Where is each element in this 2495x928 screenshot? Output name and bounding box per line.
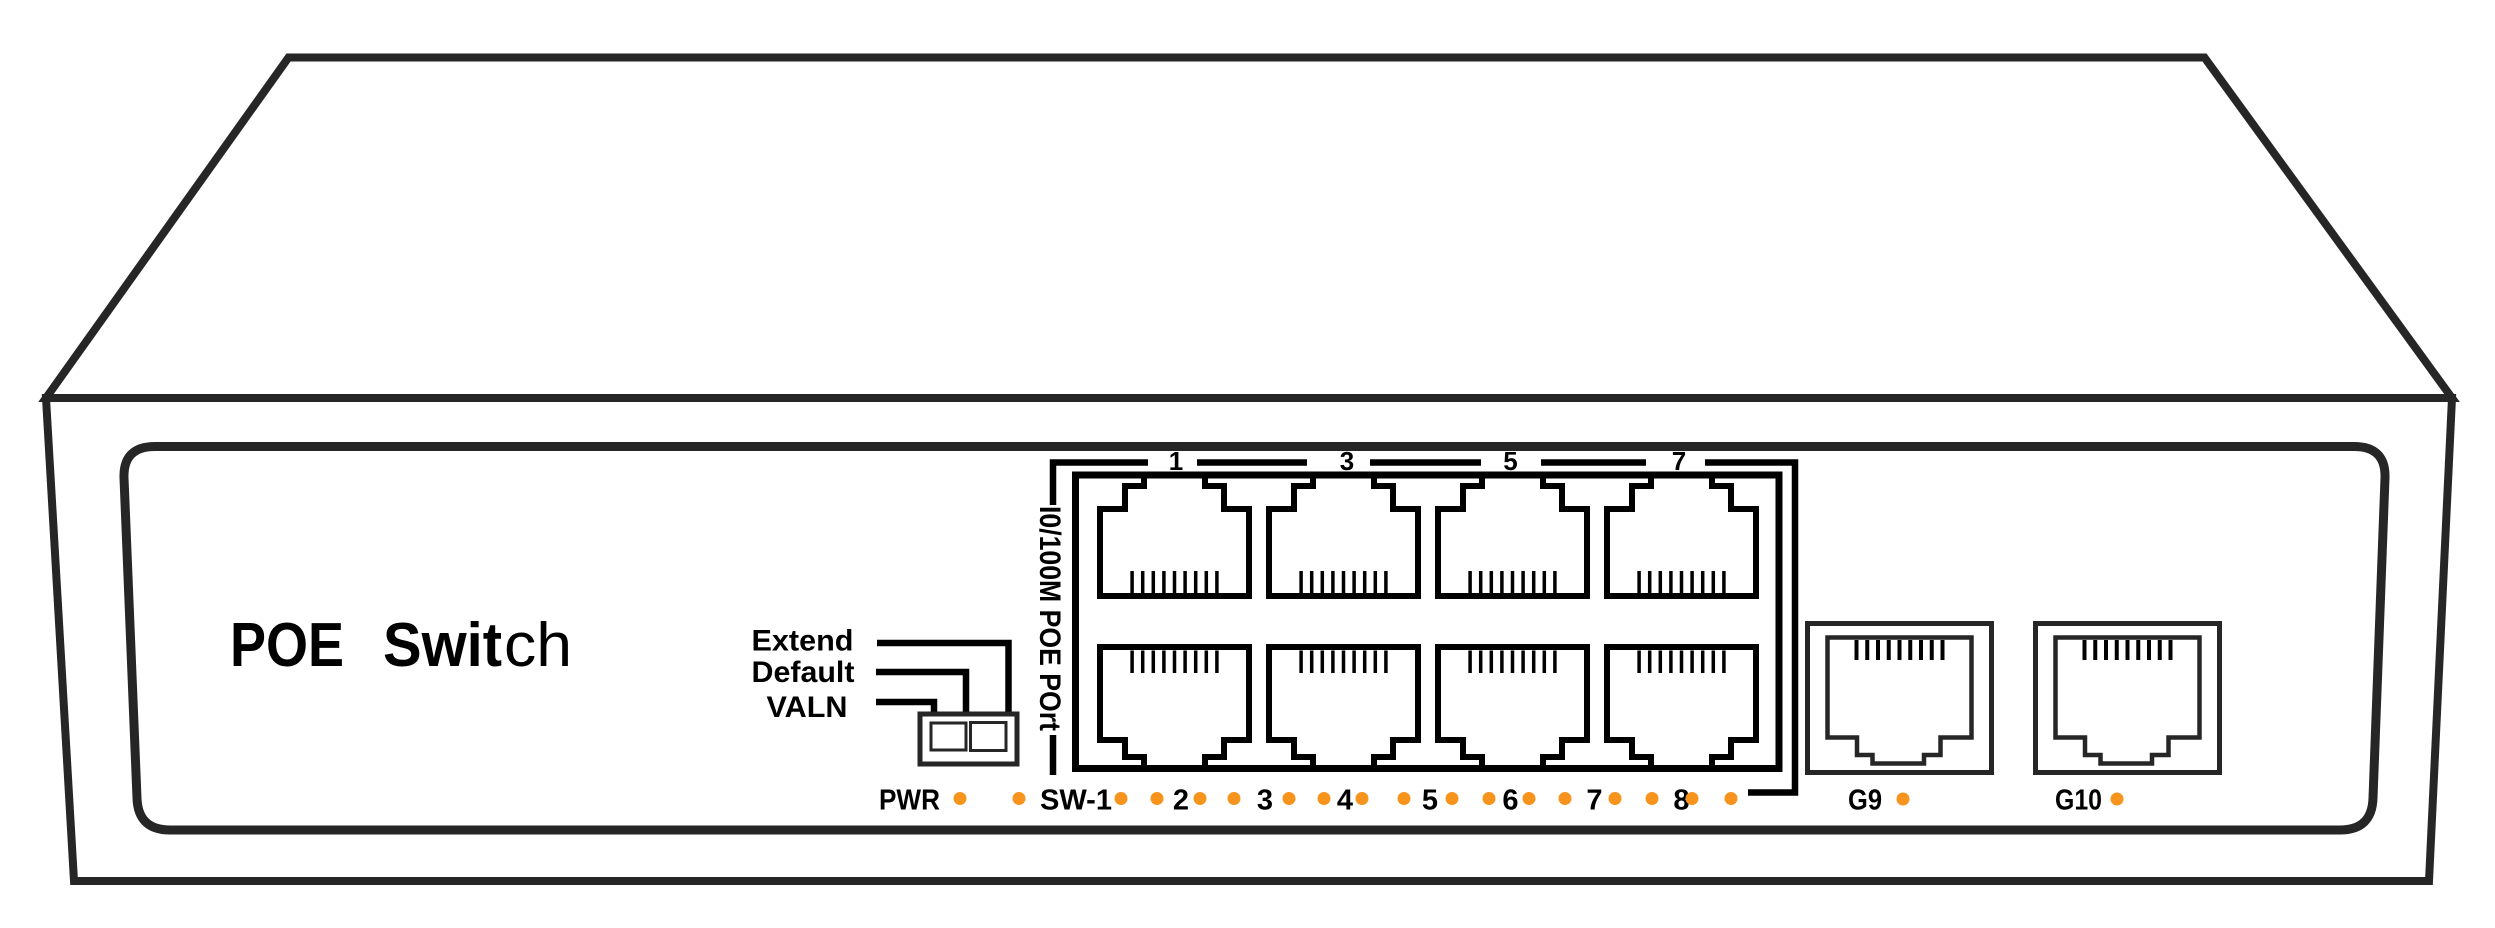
svg-text:Swit: Swit: [383, 611, 502, 680]
svg-text:4: 4: [1337, 785, 1353, 817]
svg-text:Default: Default: [752, 656, 855, 689]
svg-text:POE: POE: [230, 611, 344, 680]
svg-text:2: 2: [1173, 785, 1189, 817]
svg-text:6: 6: [1502, 785, 1518, 817]
svg-text:VALN: VALN: [767, 691, 848, 724]
svg-text:G9: G9: [1848, 785, 1882, 817]
svg-text:5: 5: [1422, 785, 1438, 817]
svg-text:PWR: PWR: [879, 785, 940, 817]
svg-text:SW-1: SW-1: [1040, 785, 1112, 817]
svg-text:7: 7: [1586, 785, 1602, 817]
svg-text:Extend: Extend: [752, 625, 854, 658]
svg-text:ch: ch: [504, 611, 572, 680]
svg-text:3: 3: [1257, 785, 1273, 817]
svg-text:G10: G10: [2055, 785, 2102, 817]
svg-text:I0/100M POE POrt: I0/100M POE POrt: [1033, 506, 1066, 731]
